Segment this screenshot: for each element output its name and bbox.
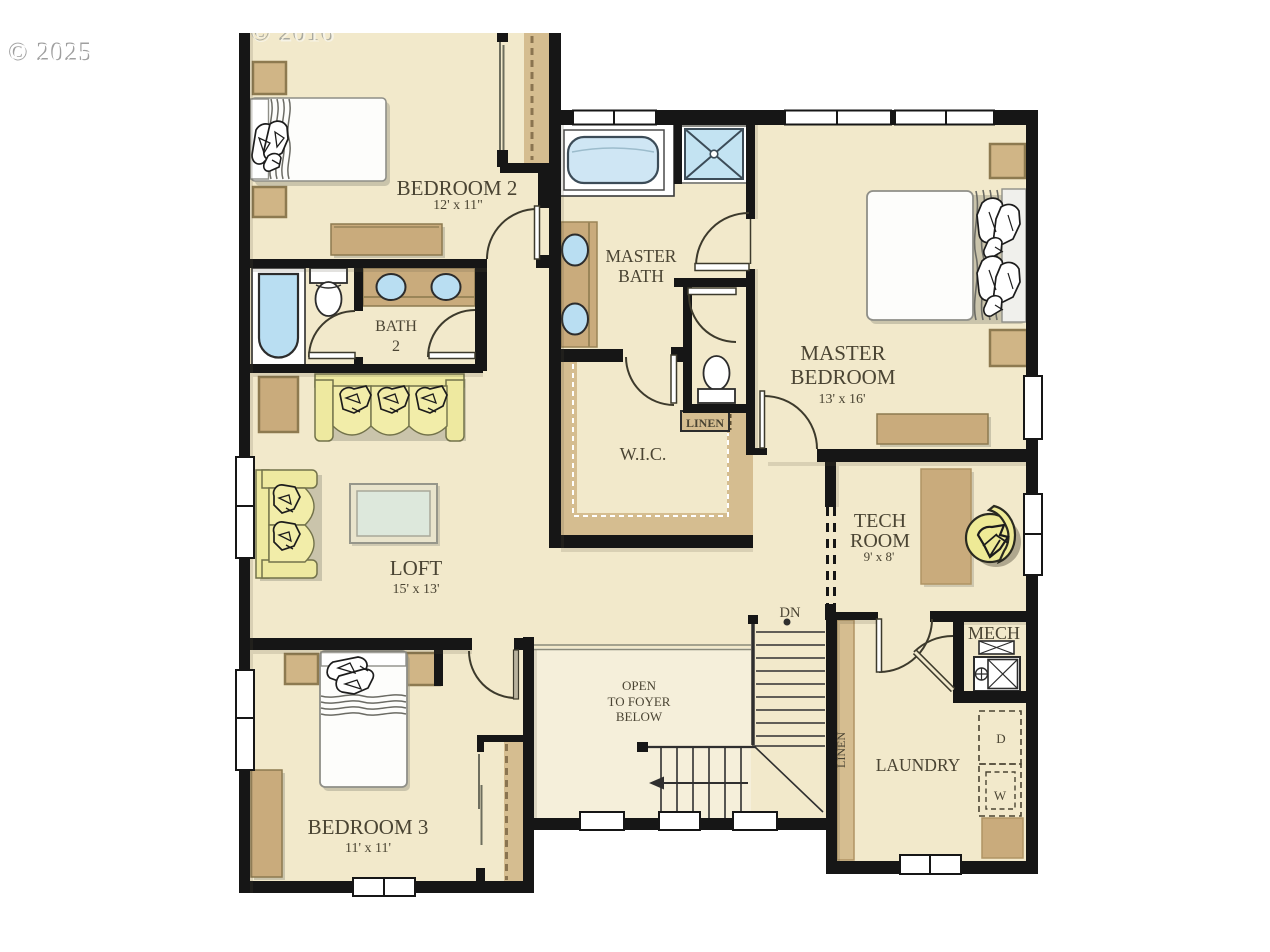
svg-text:TECH: TECH (854, 510, 906, 532)
svg-text:TO FOYER: TO FOYER (608, 694, 671, 709)
svg-text:OPEN: OPEN (622, 678, 657, 693)
svg-text:W: W (994, 788, 1007, 803)
svg-text:W.I.C.: W.I.C. (620, 444, 667, 464)
svg-text:12' x 11": 12' x 11" (433, 198, 483, 213)
svg-text:LOFT: LOFT (390, 556, 443, 580)
svg-text:15' x 13': 15' x 13' (392, 582, 439, 597)
svg-text:BEDROOM 3: BEDROOM 3 (308, 815, 429, 839)
svg-text:MECH: MECH (968, 623, 1020, 643)
svg-text:DN: DN (780, 605, 801, 621)
svg-text:LINEN: LINEN (834, 732, 848, 768)
svg-text:© 2025: © 2025 (9, 38, 93, 67)
svg-text:© 2016: © 2016 (251, 18, 335, 47)
svg-text:13' x 16': 13' x 16' (818, 392, 865, 407)
svg-text:LINEN: LINEN (686, 416, 724, 430)
svg-text:11' x 11': 11' x 11' (345, 841, 391, 856)
svg-text:MASTER: MASTER (606, 246, 677, 266)
svg-text:BATH: BATH (375, 318, 417, 335)
svg-text:BEDROOM 2: BEDROOM 2 (397, 176, 518, 200)
svg-text:BATH: BATH (618, 266, 664, 286)
svg-text:BEDROOM: BEDROOM (790, 365, 895, 389)
svg-text:D: D (996, 731, 1005, 746)
svg-text:9' x 8': 9' x 8' (864, 549, 895, 564)
svg-text:2: 2 (392, 338, 400, 355)
svg-text:MASTER: MASTER (800, 341, 885, 365)
svg-text:BELOW: BELOW (616, 709, 663, 724)
svg-text:LAUNDRY: LAUNDRY (876, 755, 961, 775)
